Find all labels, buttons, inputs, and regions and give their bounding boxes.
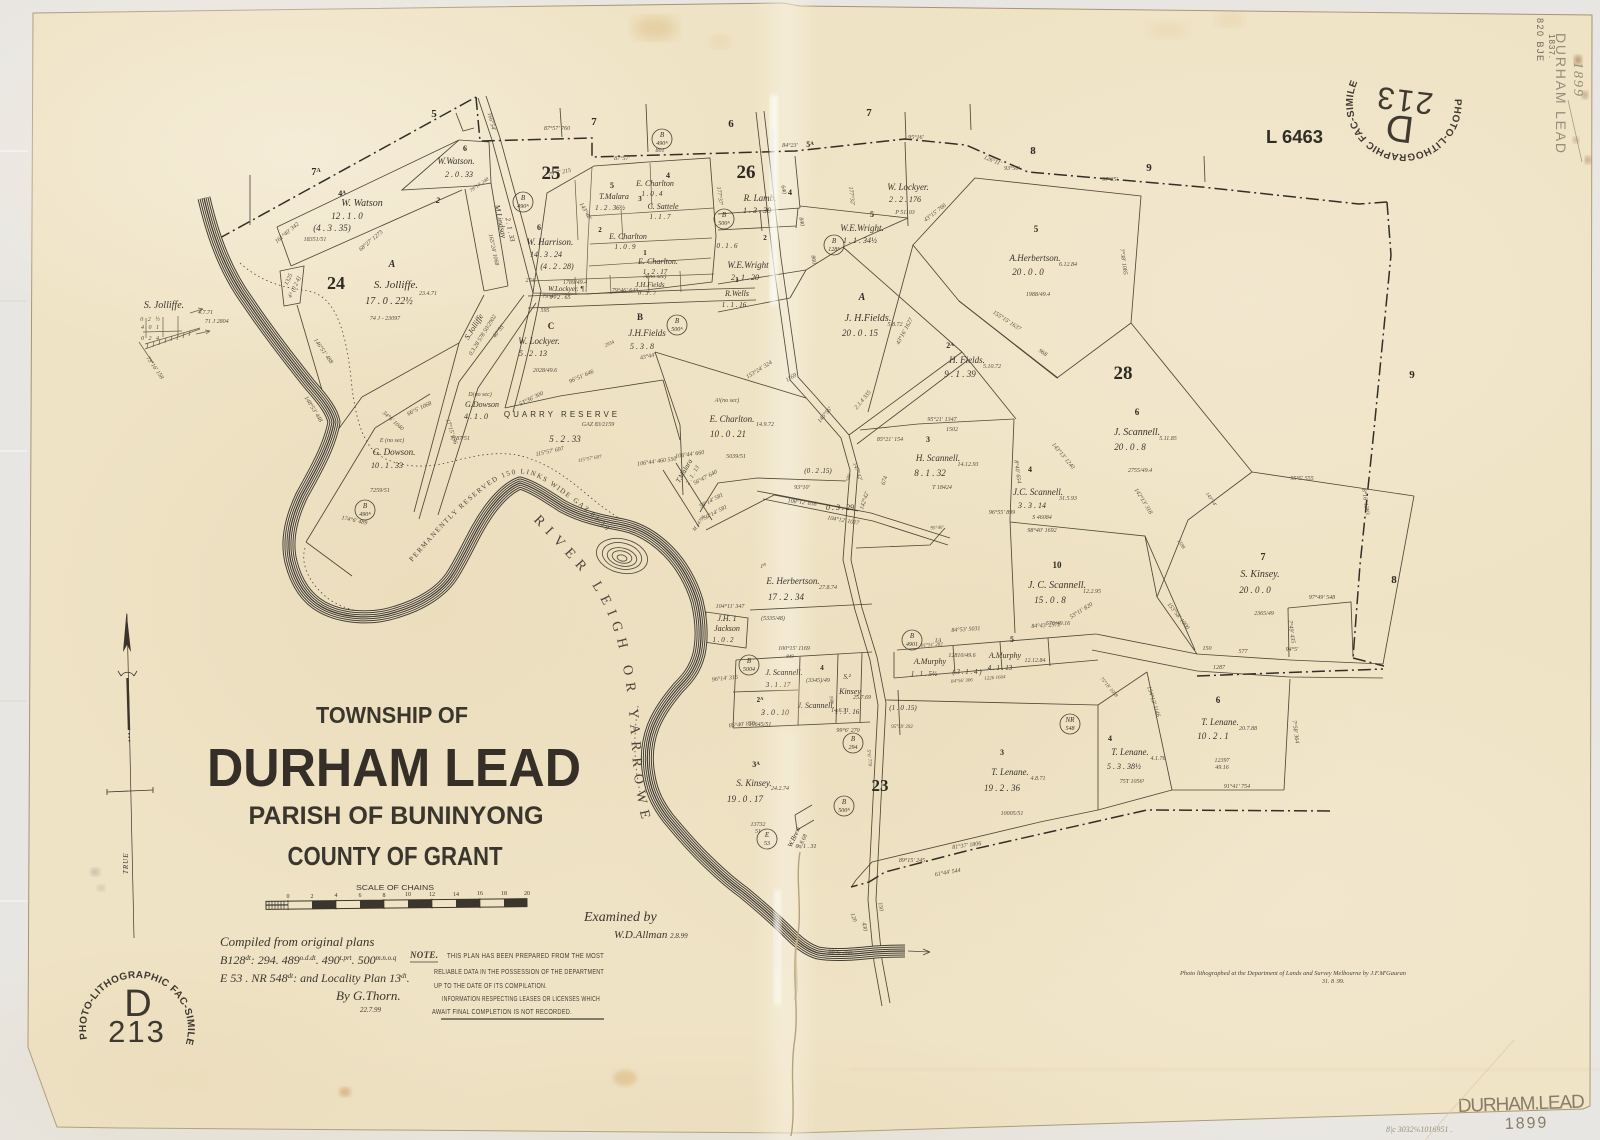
svg-text:91°41' 754: 91°41' 754 [1224,783,1250,790]
svg-text:B: B [832,237,837,245]
svg-text:6: 6 [463,144,467,153]
svg-text:A.Murphy: A.Murphy [913,657,947,666]
svg-text:T.Malara: T.Malara [599,192,629,201]
svg-text:P 51103: P 51103 [894,210,915,216]
svg-text:4: 4 [788,188,792,197]
svg-text:490ᴬ: 490ᴬ [359,511,371,518]
svg-text:H. Fields.: H. Fields. [948,355,985,365]
svg-text:1 . 1 . 5½: 1 . 1 . 5½ [911,670,938,678]
svg-text:G. Dowson.: G. Dowson. [373,447,416,457]
svg-text:L 6463: L 6463 [1266,127,1323,147]
svg-text:B: B [910,632,915,640]
svg-text:J.C. Scannell.: J.C. Scannell. [1013,487,1063,497]
svg-text:20 . 0 . 8: 20 . 0 . 8 [1114,442,1146,452]
svg-text:5: 5 [1034,224,1039,234]
svg-text:3: 3 [1000,748,1004,757]
svg-text:J. C. Scannell.: J. C. Scannell. [1028,580,1086,591]
svg-text:97°49' 548: 97°49' 548 [1309,594,1335,601]
svg-text:820 BJE: 820 BJE [1535,18,1545,63]
svg-text:104°11' 347: 104°11' 347 [716,603,746,610]
svg-text:(0 . 2 .15): (0 . 2 .15) [804,467,832,475]
svg-text:B: B [851,735,856,743]
svg-text:GAZ 83/2159: GAZ 83/2159 [582,422,615,428]
svg-text:500ᴬ: 500ᴬ [718,221,730,227]
svg-text:17 . 2 . 34: 17 . 2 . 34 [768,592,805,602]
svg-text:B: B [521,194,526,202]
svg-text:1 . 1 . 7: 1 . 1 . 7 [650,213,672,221]
svg-text:5: 5 [431,108,437,120]
svg-text:97°25': 97°25' [1102,176,1118,183]
svg-text:6: 6 [1135,407,1140,417]
svg-text:5: 5 [870,210,874,219]
svg-text:E. Charlton: E. Charlton [608,232,647,241]
svg-text:4: 4 [820,664,824,672]
svg-text:Jackson: Jackson [714,624,740,633]
svg-text:A¹(no sec): A¹(no sec) [714,397,740,404]
svg-text:71 J 2804: 71 J 2804 [205,318,229,325]
svg-text:17 . 0 . 22½: 17 . 0 . 22½ [365,296,413,307]
svg-text:12: 12 [429,892,435,898]
svg-text:0 . 3 . 7: 0 . 3 . 7 [638,291,657,297]
svg-text:S 46084: S 46084 [1032,514,1052,521]
svg-text:2 . 2 . 176: 2 . 2 . 176 [889,195,921,204]
svg-text:31. 8 .99.: 31. 8 .99. [1321,979,1345,985]
svg-text:14: 14 [453,892,459,898]
svg-text:2 . 0 . 33: 2 . 0 . 33 [445,170,473,179]
svg-text:Examined by: Examined by [583,910,657,925]
svg-text:15 . 0 . 8: 15 . 0 . 8 [1034,595,1066,605]
svg-text:W. Harrison.: W. Harrison. [527,237,573,247]
svg-text:(5335/48): (5335/48) [761,615,785,622]
svg-text:W.Lockyer. ¶: W.Lockyer. ¶ [548,285,584,293]
svg-text:1 . 0 . 9: 1 . 0 . 9 [615,243,637,251]
svg-text:5 . 3 . 8: 5 . 3 . 8 [630,342,654,351]
svg-text:0 2 ½: 0 2 ½ [140,316,160,323]
svg-text:31.5.93: 31.5.93 [1058,496,1077,502]
svg-text:J.H.Fields: J.H.Fields [635,281,664,289]
svg-text:(4 . 2 . 28): (4 . 2 . 28) [540,262,574,271]
svg-text:9: 9 [1146,162,1152,174]
svg-text:12810/49.6: 12810/49.6 [948,652,975,659]
svg-text:8: 8 [383,893,386,899]
svg-text:128ᴬ: 128ᴬ [828,247,840,253]
svg-text:J. H.Fields.: J. H.Fields. [845,313,892,324]
svg-text:NR: NR [1065,716,1076,724]
svg-text:74 J - 23097: 74 J - 23097 [370,315,401,322]
svg-text:B: B [675,317,680,325]
svg-text:12 . 1 . 0: 12 . 1 . 0 [331,211,363,221]
svg-text:5.11.85: 5.11.85 [1159,436,1177,442]
svg-text:S. Kinsey.: S. Kinsey. [1240,569,1279,580]
svg-text:6: 6 [537,223,541,232]
svg-text:Photo lithographed at the Depa: Photo lithographed at the Department of … [1179,970,1406,977]
svg-text:14.9.72: 14.9.72 [756,421,774,428]
svg-text:5004: 5004 [743,666,755,673]
svg-text:25.7.69: 25.7.69 [853,695,871,701]
svg-text:10: 10 [1053,560,1063,570]
svg-text:6: 6 [728,118,734,130]
svg-text:294: 294 [849,744,858,751]
svg-text:801: 801 [656,148,665,154]
svg-text:53: 53 [764,841,770,847]
svg-text:14.6.71: 14.6.71 [831,707,849,714]
svg-text:6: 6 [359,893,362,899]
svg-text:10 . 1 . 33: 10 . 1 . 33 [371,461,403,470]
svg-text:1899: 1899 [1505,1114,1549,1133]
svg-text:D(no sec): D(no sec) [467,391,492,398]
svg-text:0: 0 [287,894,290,900]
svg-text:PARISH OF BUNINYONG: PARISH OF BUNINYONG [249,802,544,830]
svg-text:3: 3 [926,435,930,444]
svg-text:79°46': 79°46' [542,293,558,300]
svg-text:W.Watson.: W.Watson. [437,156,474,166]
svg-text:B: B [747,657,752,665]
svg-text:8 . 1 . 32: 8 . 1 . 32 [914,468,946,478]
svg-text:274: 274 [526,277,535,284]
svg-text:5 . 3 . 38½: 5 . 3 . 38½ [1107,762,1141,771]
svg-text:S. Jolliffe.: S. Jolliffe. [374,279,418,291]
svg-text:95°5' 555: 95°5' 555 [1290,475,1313,482]
svg-text:14.12.93: 14.12.93 [958,461,979,468]
svg-text:22.7.99: 22.7.99 [360,1006,382,1014]
svg-text:16: 16 [477,891,483,897]
svg-text:7: 7 [866,107,872,119]
svg-text:548: 548 [1066,725,1075,732]
svg-text:1: 1 [735,276,739,284]
svg-text:AWAIT FINAL COMPLETION IS NOT: AWAIT FINAL COMPLETION IS NOT RECORDED. [432,1009,572,1016]
svg-text:10 . 2 . 1: 10 . 2 . 1 [1197,731,1229,741]
svg-text:S. Jolliffe.: S. Jolliffe. [144,300,184,311]
svg-text:500ᴬ: 500ᴬ [671,327,683,333]
svg-text:98°40' 1692: 98°40' 1692 [1027,527,1056,534]
svg-text:84°23': 84°23' [782,142,798,149]
svg-text:3 . 3 . 14: 3 . 3 . 14 [1017,501,1046,510]
svg-text:W.E.Wright: W.E.Wright [727,260,769,270]
svg-text:J.H.Fields: J.H.Fields [628,328,666,338]
svg-text:2365/49: 2365/49 [1254,610,1274,617]
svg-text:93°50': 93°50' [1004,165,1020,172]
svg-text:T. Lenane.: T. Lenane. [991,767,1029,777]
svg-text:87°57': 87°57' [614,155,630,162]
svg-text:5 . 2 . 13: 5 . 2 . 13 [519,349,547,358]
svg-text:1 . 1 . 34½: 1 . 1 . 34½ [843,236,877,245]
svg-text:10005/51: 10005/51 [1001,811,1024,817]
svg-text:B: B [637,312,643,322]
svg-text:7: 7 [591,116,597,128]
svg-text:18: 18 [501,891,507,897]
svg-text:0 . 3 . 29: 0 . 3 . 29 [826,503,854,512]
svg-text:SCALE OF CHAINS: SCALE OF CHAINS [356,883,434,892]
svg-text:E (no sec): E (no sec) [379,437,404,444]
svg-text:6: 6 [1216,695,1221,705]
svg-text:S. Kinsey.: S. Kinsey. [736,778,771,788]
svg-text:T. Lenane.: T. Lenane. [1111,747,1149,757]
svg-text:27.8.74: 27.8.74 [819,584,837,591]
svg-text:12.12.84: 12.12.84 [1025,657,1046,664]
svg-text:TRUE: TRUE [122,853,130,875]
svg-text:95°40': 95°40' [930,526,944,532]
svg-text:7: 7 [1261,552,1266,563]
svg-text:20: 20 [524,891,530,897]
svg-text:4 . 1 . 0: 4 . 1 . 0 [464,412,488,421]
svg-text:E. Charlton.: E. Charlton. [709,414,755,424]
svg-text:W. Lockyer.: W. Lockyer. [887,182,928,192]
svg-text:1 . 0 . 4: 1 . 0 . 4 [642,190,664,198]
svg-text:A.Herbertson.: A.Herbertson. [1009,253,1061,263]
svg-text:B: B [722,211,727,219]
svg-text:23: 23 [872,776,889,795]
svg-text:8: 8 [1030,145,1036,157]
svg-text:A: A [388,259,396,270]
svg-text:20 . 0 . 15: 20 . 0 . 15 [842,328,879,338]
svg-text:J. Scannell.: J. Scannell. [765,668,802,677]
svg-text:49.16: 49.16 [1215,764,1229,771]
svg-text:85°21' 154: 85°21' 154 [877,436,903,443]
svg-text:9: 9 [1409,369,1415,381]
svg-text:490ᴬ: 490ᴬ [517,203,529,210]
svg-text:DURHAM LEAD: DURHAM LEAD [1553,33,1569,155]
svg-text:1988/49.4: 1988/49.4 [1026,291,1050,298]
svg-text:20.7.88: 20.7.88 [1239,726,1257,732]
svg-text:0 . 1 . 6: 0 . 1 . 6 [717,242,739,250]
svg-text:5.10.72: 5.10.72 [983,364,1001,370]
svg-text:89°15' 245: 89°15' 245 [899,857,925,864]
svg-text:DURHAM.LEAD: DURHAM.LEAD [1457,1092,1586,1117]
svg-text:T. Lenane.: T. Lenane. [1201,717,1239,727]
svg-text:6.12.84: 6.12.84 [1059,261,1077,268]
svg-text:10: 10 [405,892,411,898]
svg-text:B: B [842,798,847,806]
svg-text:COUNTY OF GRANT: COUNTY OF GRANT [288,841,503,871]
svg-text:24.2.74: 24.2.74 [771,785,789,792]
svg-text:23.4.71: 23.4.71 [419,290,437,297]
svg-text:E. Charlton.: E. Charlton. [637,257,678,266]
svg-text:99°6' 270: 99°6' 270 [836,727,859,734]
svg-text:A(no sec): A(no sec) [643,273,667,280]
svg-text:J. Scannell.: J. Scannell. [1114,427,1160,438]
svg-text:5039/51: 5039/51 [726,454,746,460]
svg-text:18351/51: 18351/51 [304,237,327,243]
svg-text:2: 2 [763,234,767,242]
svg-text:12.2.95: 12.2.95 [1083,589,1101,595]
svg-text:2755/49.4: 2755/49.4 [1128,467,1152,474]
svg-text:79°46' 643: 79°46' 643 [612,287,638,294]
svg-text:1 . 2 . 36½: 1 . 2 . 36½ [595,204,626,212]
svg-text:28: 28 [1114,363,1133,384]
svg-text:490ᴬ: 490ᴬ [656,140,668,147]
svg-text:577: 577 [1239,649,1249,655]
svg-text:213: 213 [108,1014,166,1049]
svg-text:RELIABLE DATA IN THE POSSESSIO: RELIABLE DATA IN THE POSSESSION OF THE D… [434,969,604,976]
svg-text:Compiled from original plans: Compiled from original plans [220,934,374,949]
svg-text:C. Sattele: C. Sattele [647,202,679,211]
svg-text:8: 8 [1391,574,1397,586]
svg-text:A.Murphy: A.Murphy [988,651,1022,660]
svg-text:100°15' 1169: 100°15' 1169 [778,645,810,652]
svg-text:4.1.76: 4.1.76 [1151,755,1166,762]
svg-text:95°16': 95°16' [908,134,924,141]
svg-text:0 . 1 . 31: 0 . 1 . 31 [796,844,817,850]
svg-text:4: 4 [335,893,338,899]
svg-text:By G.Thorn.: By G.Thorn. [336,988,401,1003]
svg-text:4 . 1 . 13: 4 . 1 . 13 [988,664,1013,672]
svg-text:19 . 2 . 36: 19 . 2 . 36 [984,783,1021,793]
svg-text:( 3 . 1 . 4 ): ( 3 . 1 . 4 ) [952,668,982,676]
svg-text:1 . 1 . 16: 1 . 1 . 16 [722,301,747,309]
svg-text:595: 595 [541,308,550,314]
svg-text:2: 2 [598,226,602,234]
svg-text:R.Wells: R.Wells [724,289,749,298]
svg-text:93°10': 93°10' [794,484,810,491]
svg-text:2: 2 [311,894,314,900]
svg-text:C: C [548,321,555,331]
svg-text:(4 . 3 . 35): (4 . 3 . 35) [313,223,351,233]
svg-text:(3345)/49: (3345)/49 [806,677,830,684]
svg-text:E. Charlton: E. Charlton [635,179,674,188]
svg-text:5: 5 [1010,635,1014,644]
svg-text:4901: 4901 [906,641,918,648]
svg-text:150: 150 [1203,646,1212,652]
svg-text:E 53 . NR 548dt: and Locality: E 53 . NR 548dt: and Locality Plan 13dt. [219,971,410,985]
svg-text:E: E [764,831,770,839]
svg-text:9 . 1 . 39: 9 . 1 . 39 [944,369,976,379]
svg-text:10 . 0 . 21: 10 . 0 . 21 [710,429,746,439]
svg-text:2: 2 [435,196,440,205]
svg-text:1502: 1502 [946,427,958,433]
svg-text:500ᴬ: 500ᴬ [838,808,850,814]
svg-text:W. Lockyer.: W. Lockyer. [518,336,559,346]
svg-text:24: 24 [327,273,345,293]
svg-text:94°5': 94°5' [1286,646,1299,653]
svg-text:B: B [363,502,368,510]
svg-text:20 . 0 . 0: 20 . 0 . 0 [1012,267,1044,277]
svg-text:7259/51: 7259/51 [370,488,390,494]
svg-text:S.²: S.² [843,673,851,681]
svg-text:4 0 1: 4 0 1 [141,324,159,331]
svg-text:19 . 0 . 17: 19 . 0 . 17 [727,794,764,804]
svg-text:20 . 0 . 0: 20 . 0 . 0 [1239,585,1271,595]
svg-text:95°21' 1347: 95°21' 1347 [927,416,957,423]
svg-text:UP TO THE DATE OF ITS COMPILAT: UP TO THE DATE OF ITS COMPILATION. [434,983,547,990]
svg-text:1287: 1287 [1213,665,1226,671]
svg-text:B: B [660,131,665,139]
svg-text:W. Watson: W. Watson [341,198,383,209]
svg-text:H. Scannell.: H. Scannell. [915,453,960,463]
svg-text:8|c 3032℅1016951 .: 8|c 3032℅1016951 . [1386,1125,1452,1134]
svg-text:(1 . 0 .15): (1 . 0 .15) [889,704,917,712]
svg-text:96°55' 899: 96°55' 899 [989,509,1015,516]
svg-text:12397: 12397 [1215,758,1231,764]
svg-text:2028/49.6: 2028/49.6 [533,367,557,374]
svg-text:14 . 3 . 24: 14 . 3 . 24 [530,250,562,259]
svg-text:5.8.72: 5.8.72 [888,322,903,328]
svg-text:849: 849 [786,655,794,660]
svg-text:213: 213 [1373,80,1435,122]
svg-text:T 18424: T 18424 [932,484,952,491]
svg-text:1 . 3 . 30: 1 . 3 . 30 [743,206,771,215]
svg-text:INFORMATION RESPECTING LEASES: INFORMATION RESPECTING LEASES OR LICENSE… [442,996,600,1003]
svg-text:DURHAM LEAD: DURHAM LEAD [207,738,581,798]
svg-text:E. Herbertson.: E. Herbertson. [765,576,819,586]
svg-text:G.Dowson: G.Dowson [465,400,499,409]
svg-text:3: 3 [638,195,642,203]
svg-text:5: 5 [610,181,614,190]
svg-text:4: 4 [1108,734,1112,743]
svg-text:26: 26 [737,162,756,183]
svg-text:1: 1 [643,249,647,257]
svg-text:TOWNSHIP OF: TOWNSHIP OF [316,702,468,728]
svg-text:1 . 0 . 2: 1 . 0 . 2 [713,636,735,644]
svg-text:W.E.Wright.: W.E.Wright. [840,223,883,233]
svg-text:5 . 2 . 33: 5 . 2 . 33 [549,434,581,444]
svg-text:A: A [858,292,866,303]
svg-text:QUARRY RESERVE: QUARRY RESERVE [504,410,620,419]
svg-text:87°57' 760: 87°57' 760 [544,125,570,132]
svg-text:J.H. 1: J.H. 1 [717,614,736,623]
svg-text:13732: 13732 [751,822,766,828]
svg-text:4: 4 [1028,465,1032,474]
svg-text:75T 1056¹: 75T 1056¹ [1120,779,1145,785]
svg-text:95°59' 292: 95°59' 292 [891,725,913,730]
svg-text:4.8.71: 4.8.71 [1031,775,1046,782]
